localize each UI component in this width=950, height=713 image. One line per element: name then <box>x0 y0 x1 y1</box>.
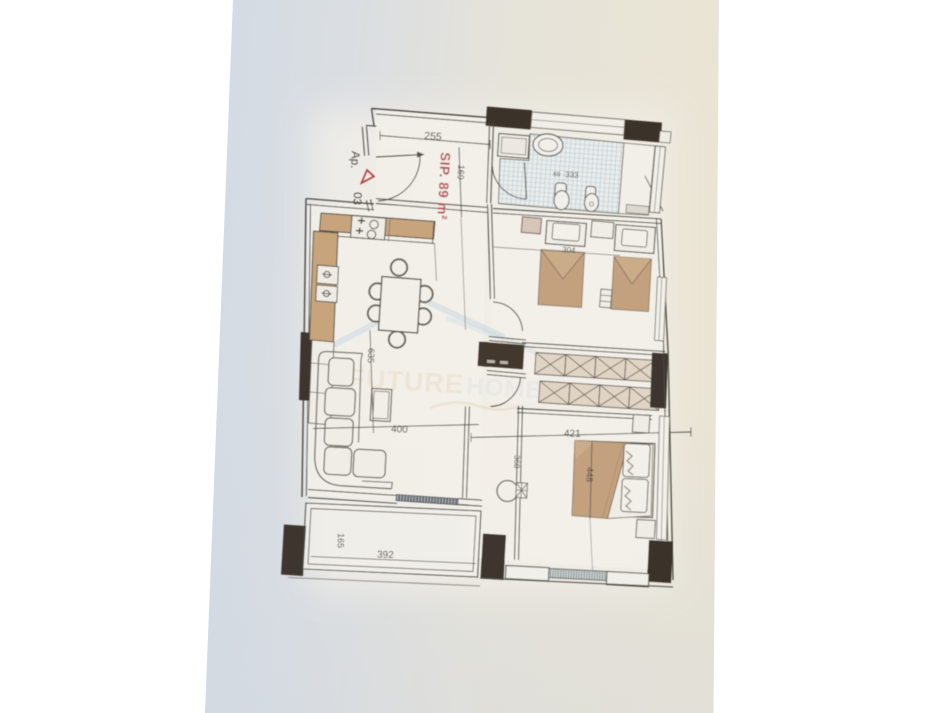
svg-text:304: 304 <box>562 245 576 255</box>
svg-text:03: 03 <box>350 192 363 205</box>
svg-text:69: 69 <box>553 171 561 179</box>
svg-text:169: 169 <box>455 164 466 180</box>
svg-text:392: 392 <box>377 550 394 562</box>
svg-text:635: 635 <box>366 348 377 364</box>
svg-text:255: 255 <box>424 130 443 143</box>
svg-text:165: 165 <box>335 533 346 548</box>
svg-text:421: 421 <box>564 429 581 440</box>
svg-text:Ap.: Ap. <box>348 151 361 169</box>
svg-text:368: 368 <box>512 455 521 469</box>
svg-text:333: 333 <box>565 170 579 180</box>
svg-text:HOME: HOME <box>466 373 543 404</box>
svg-text:400: 400 <box>391 424 408 436</box>
svg-text:448: 448 <box>584 467 595 482</box>
